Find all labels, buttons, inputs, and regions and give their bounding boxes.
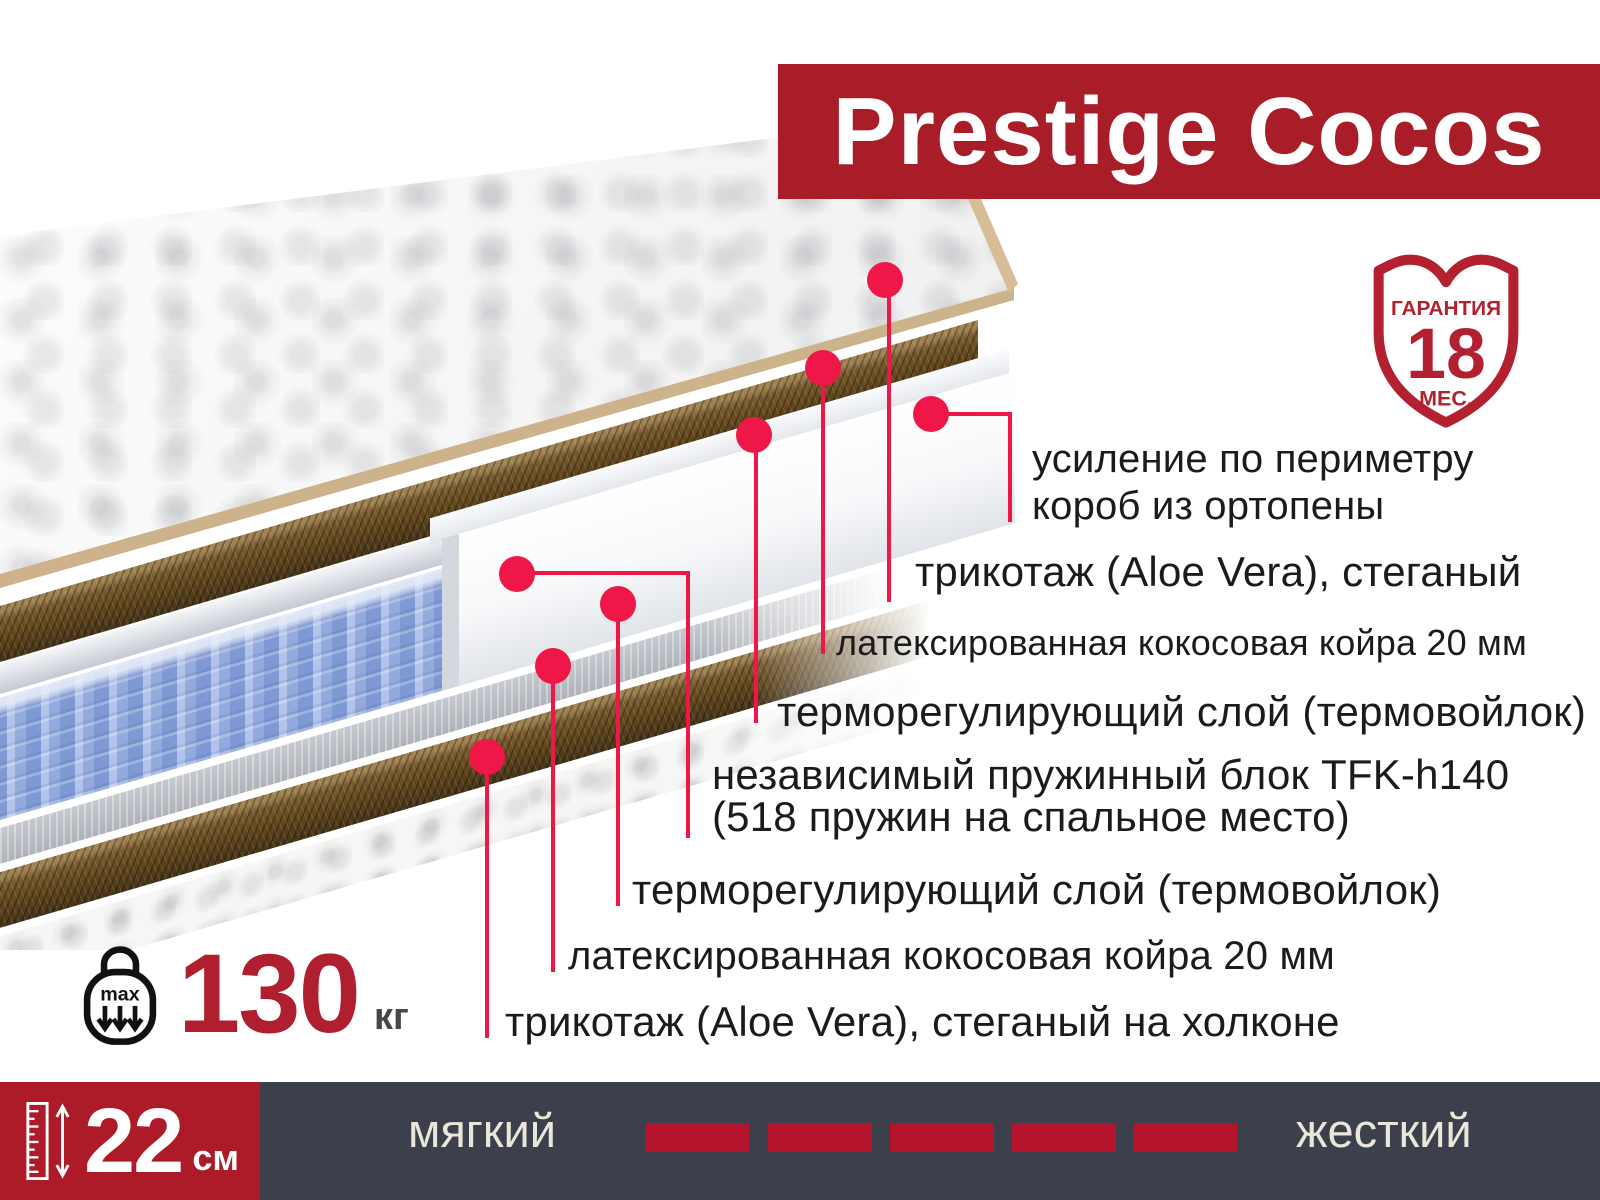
firmness-segment	[890, 1123, 994, 1152]
firmness-soft-label: мягкий	[408, 1103, 556, 1158]
warranty-shield-icon: ГАРАНТИЯ 18 МЕС.	[1360, 243, 1532, 433]
callout-line	[551, 666, 555, 972]
layer-label-thermofelt-bottom: терморегулирующий слой (термовойлок)	[632, 866, 1441, 914]
callout-dot	[535, 648, 571, 684]
callout-line	[887, 280, 891, 602]
firmness-hard-label: жесткий	[1296, 1103, 1472, 1158]
callout-dot	[499, 556, 535, 592]
callout-line	[821, 368, 825, 654]
callout-dot	[805, 350, 841, 386]
callout-line	[754, 435, 758, 723]
height-badge: 22 см	[0, 1082, 260, 1200]
kettlebell-max-weight-icon: max	[73, 930, 167, 1048]
callout-line	[1008, 412, 1012, 522]
layer-label-thermofelt-top: терморегулирующий слой (термовойлок)	[777, 688, 1586, 736]
callout-line	[686, 571, 690, 838]
callout-line	[485, 757, 489, 1038]
max-weight-unit: кг	[374, 996, 409, 1039]
layer-label-knit-bottom: трикотаж (Aloe Vera), стеганый на холкон…	[505, 998, 1340, 1046]
layer-label-coir-bottom: латексированная кокосовая койра 20 мм	[568, 934, 1335, 979]
product-title: Prestige Cocos	[833, 77, 1546, 187]
ruler-height-icon	[24, 1099, 76, 1183]
layer-label-coir-top: латексированная кокосовая койра 20 мм	[836, 622, 1527, 664]
max-weight-value: 130	[178, 938, 359, 1050]
callout-dot	[600, 586, 636, 622]
firmness-segment	[646, 1123, 750, 1152]
callout-dot	[469, 739, 505, 775]
max-badge: max	[100, 983, 140, 1005]
firmness-segment	[1012, 1123, 1116, 1152]
firmness-segment	[768, 1123, 872, 1152]
layer-label-knit-top: трикотаж (Aloe Vera), стеганый	[915, 548, 1521, 596]
warranty-months: 18	[1406, 314, 1486, 394]
callout-dot	[736, 417, 772, 453]
callout-dot	[867, 262, 903, 298]
height-value: 22	[84, 1095, 182, 1187]
callout-line	[616, 604, 620, 906]
callout-line	[517, 571, 689, 575]
height-unit: см	[192, 1137, 239, 1179]
callout-dot	[913, 396, 949, 432]
layer-label-spring-block: независимый пружинный блок TFK-h140 (518…	[712, 754, 1509, 838]
layer-label-perimeter: усиление по периметру короб из ортопены	[1032, 436, 1474, 530]
firmness-segment	[1134, 1123, 1238, 1152]
warranty-unit: МЕС.	[1419, 386, 1473, 410]
product-title-banner: Prestige Cocos	[778, 64, 1600, 199]
